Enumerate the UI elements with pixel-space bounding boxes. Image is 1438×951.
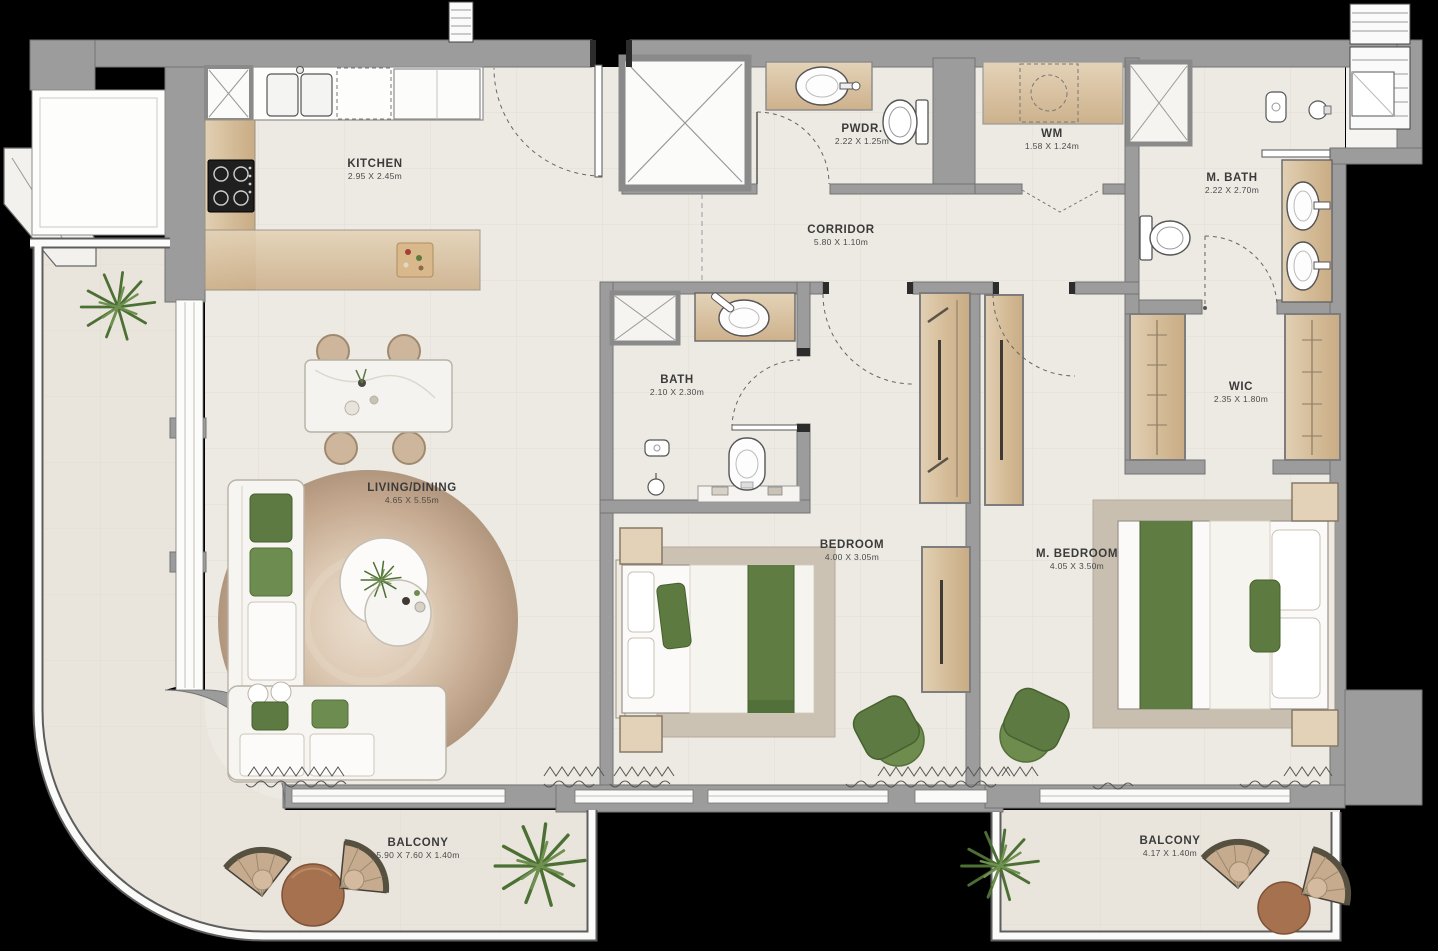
balcony-table-icon [1258, 882, 1310, 934]
stove-icon [208, 160, 254, 212]
bath-door-leaf [732, 425, 798, 430]
toilet-paper-icon [648, 479, 664, 495]
towel-rail-icon [1262, 150, 1330, 157]
floorplan-canvas: KITCHEN 2.95 X 2.45m PWDR. 2.22 X 1.25m … [0, 0, 1438, 951]
soap-dish-icon [1266, 92, 1286, 122]
serving-board-icon [397, 243, 433, 277]
mbedroom-bed-icon [1118, 515, 1335, 713]
nightstand-icon [620, 716, 662, 752]
bath-toilet-icon [729, 438, 765, 490]
pwdr-toilet-icon [883, 100, 928, 144]
nightstand-icon [1292, 710, 1338, 746]
kitchen-island [205, 230, 480, 290]
entry-door-leaf [595, 65, 602, 177]
balcony-table-icon [282, 864, 344, 926]
wic-wardrobe-icon [1285, 314, 1340, 460]
wic-wardrobe-icon [1130, 314, 1185, 460]
mbedroom-wardrobe-icon [985, 295, 1023, 505]
dresser-icon [922, 547, 970, 692]
floorplan-drawing [0, 0, 1438, 951]
nightstand-icon [620, 528, 662, 564]
bedroom-bed-icon [616, 560, 814, 718]
nightstand-icon [1292, 483, 1338, 521]
door-jamb [590, 40, 596, 67]
louver-icon [449, 2, 473, 42]
wm-counter [983, 62, 1123, 124]
bedroom-wardrobe-icon [920, 293, 970, 503]
door-jamb [626, 40, 632, 67]
soap-dish-icon [645, 440, 669, 456]
void-box [32, 90, 165, 235]
